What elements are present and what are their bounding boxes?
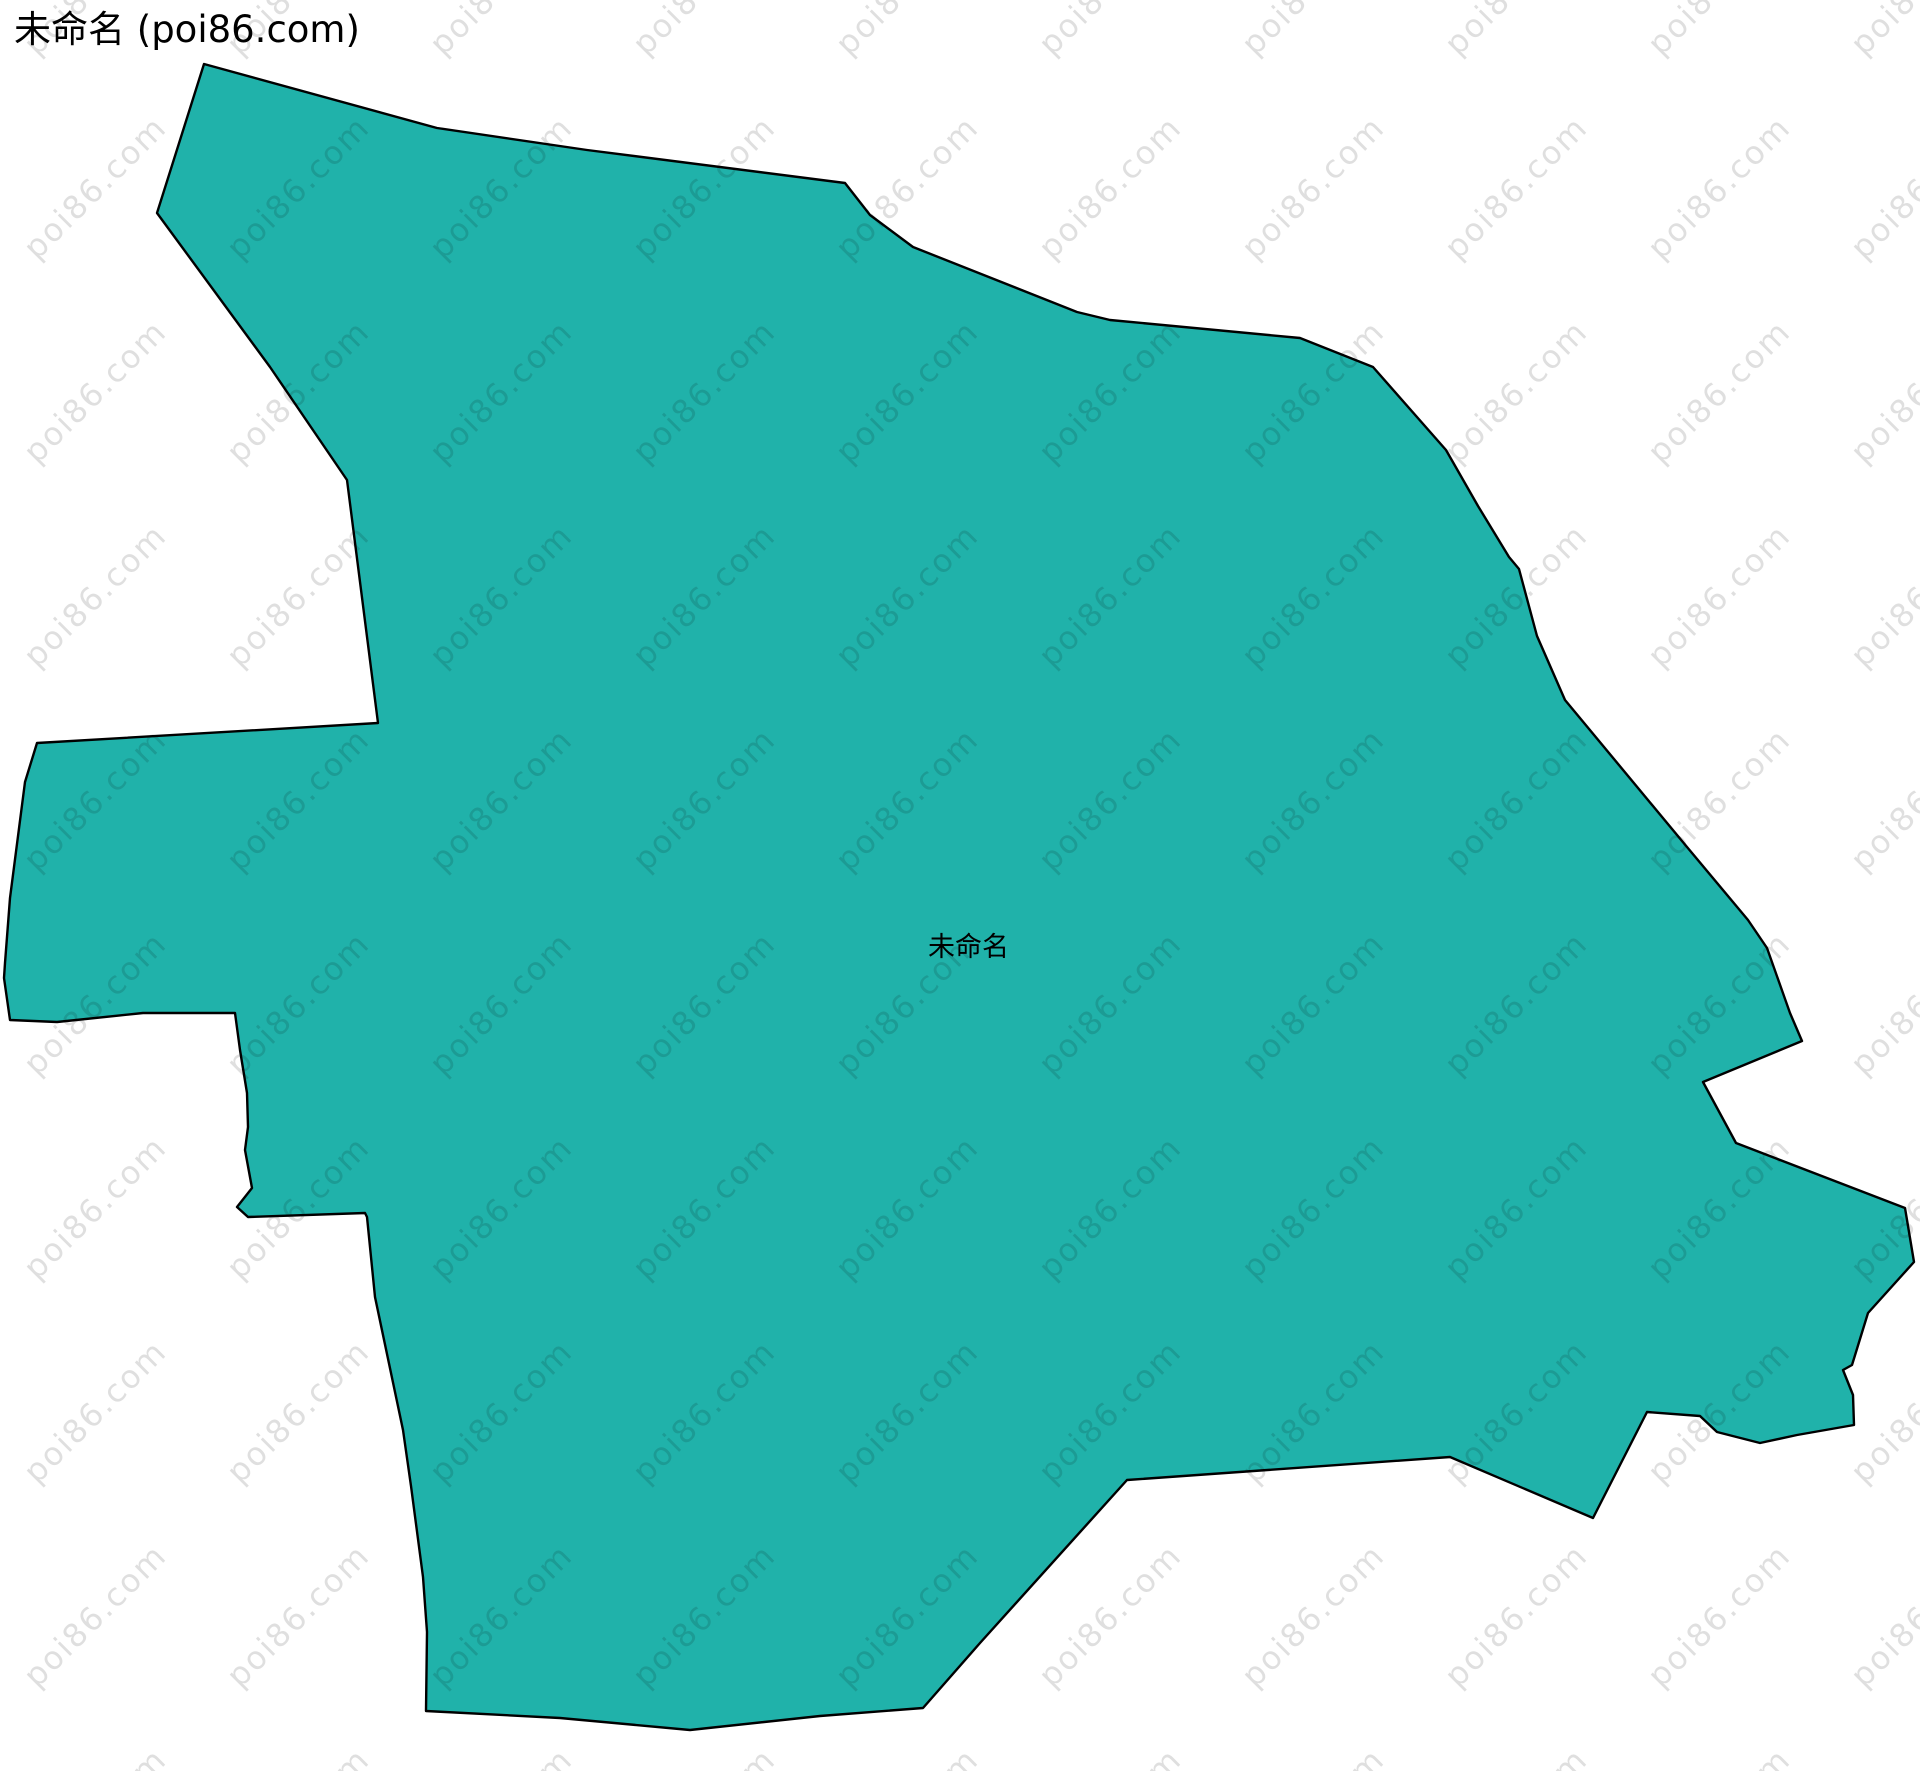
watermark-text: poi86.com xyxy=(16,1128,174,1286)
watermark-text: poi86.com xyxy=(1031,0,1189,63)
map-canvas: 未命名 (poi86.com) 未命名 poi86.compoi86.compo… xyxy=(0,0,1920,1771)
watermark-text: poi86.com xyxy=(16,312,174,470)
watermark-text: poi86.com xyxy=(1437,108,1595,266)
watermark-text: poi86.com xyxy=(1234,0,1392,63)
watermark-text: poi86.com xyxy=(1437,1536,1595,1694)
watermark-text: poi86.com xyxy=(1843,924,1920,1082)
watermark-text: poi86.com xyxy=(1843,108,1920,266)
watermark-text: poi86.com xyxy=(1234,1740,1392,1771)
watermark-text: poi86.com xyxy=(1234,1536,1392,1694)
watermark-text: poi86.com xyxy=(1234,108,1392,266)
watermark-text: poi86.com xyxy=(1437,312,1595,470)
watermark-text: poi86.com xyxy=(1843,0,1920,63)
watermark-text: poi86.com xyxy=(219,1740,377,1771)
watermark-text: poi86.com xyxy=(828,1740,986,1771)
watermark-text: poi86.com xyxy=(1640,108,1798,266)
watermark-text: poi86.com xyxy=(1843,516,1920,674)
watermark-text: poi86.com xyxy=(16,1740,174,1771)
watermark-text: poi86.com xyxy=(1640,516,1798,674)
watermark-text: poi86.com xyxy=(1031,108,1189,266)
watermark-text: poi86.com xyxy=(219,516,377,674)
watermark-text: poi86.com xyxy=(1843,1536,1920,1694)
watermark-text: poi86.com xyxy=(1843,1740,1920,1771)
watermark-text: poi86.com xyxy=(625,1740,783,1771)
watermark-text: poi86.com xyxy=(1640,1536,1798,1694)
watermark-text: poi86.com xyxy=(219,1332,377,1490)
watermark-text: poi86.com xyxy=(422,1740,580,1771)
watermark-text: poi86.com xyxy=(1843,312,1920,470)
watermark-text: poi86.com xyxy=(1640,0,1798,63)
watermark-text: poi86.com xyxy=(1640,312,1798,470)
watermark-text: poi86.com xyxy=(625,0,783,63)
map-title: 未命名 (poi86.com) xyxy=(14,8,360,52)
watermark-text: poi86.com xyxy=(1031,1740,1189,1771)
watermark-text: poi86.com xyxy=(1437,0,1595,63)
watermark-text: poi86.com xyxy=(16,516,174,674)
watermark-text: poi86.com xyxy=(16,1536,174,1694)
watermark-text: poi86.com xyxy=(1640,720,1798,878)
watermark-text: poi86.com xyxy=(1640,1740,1798,1771)
watermark-text: poi86.com xyxy=(219,1536,377,1694)
watermark-text: poi86.com xyxy=(16,1332,174,1490)
watermark-text: poi86.com xyxy=(16,108,174,266)
watermark-text: poi86.com xyxy=(1843,720,1920,878)
map-svg: 未命名 poi86.compoi86.compoi86.compoi86.com… xyxy=(0,0,1920,1771)
watermark-text: poi86.com xyxy=(1437,1740,1595,1771)
watermark-text: poi86.com xyxy=(828,0,986,63)
watermark-text: poi86.com xyxy=(422,0,580,63)
